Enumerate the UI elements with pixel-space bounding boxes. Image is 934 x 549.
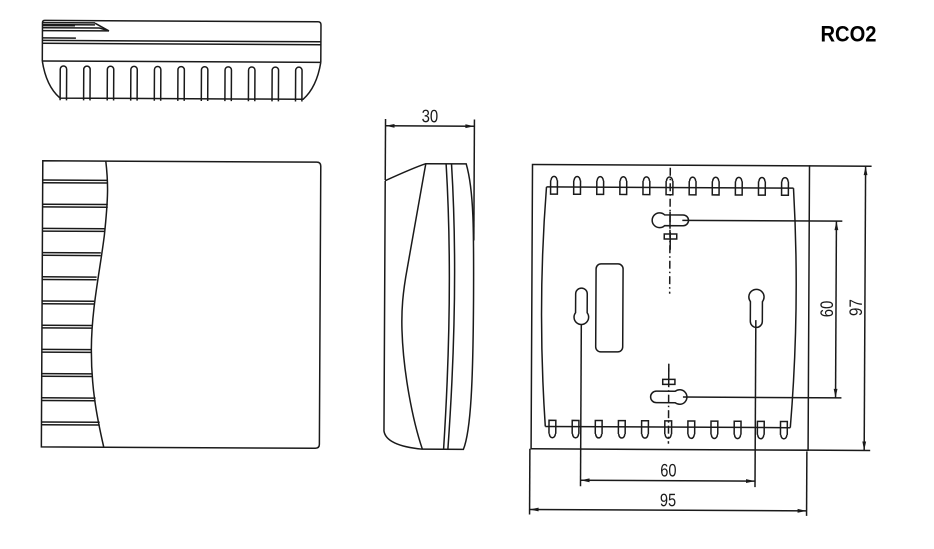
svg-text:30: 30: [422, 106, 439, 126]
svg-text:RCO2: RCO2: [821, 21, 877, 46]
svg-text:97: 97: [846, 299, 866, 316]
svg-text:60: 60: [817, 301, 837, 318]
svg-text:95: 95: [660, 490, 676, 510]
svg-text:60: 60: [660, 460, 676, 480]
